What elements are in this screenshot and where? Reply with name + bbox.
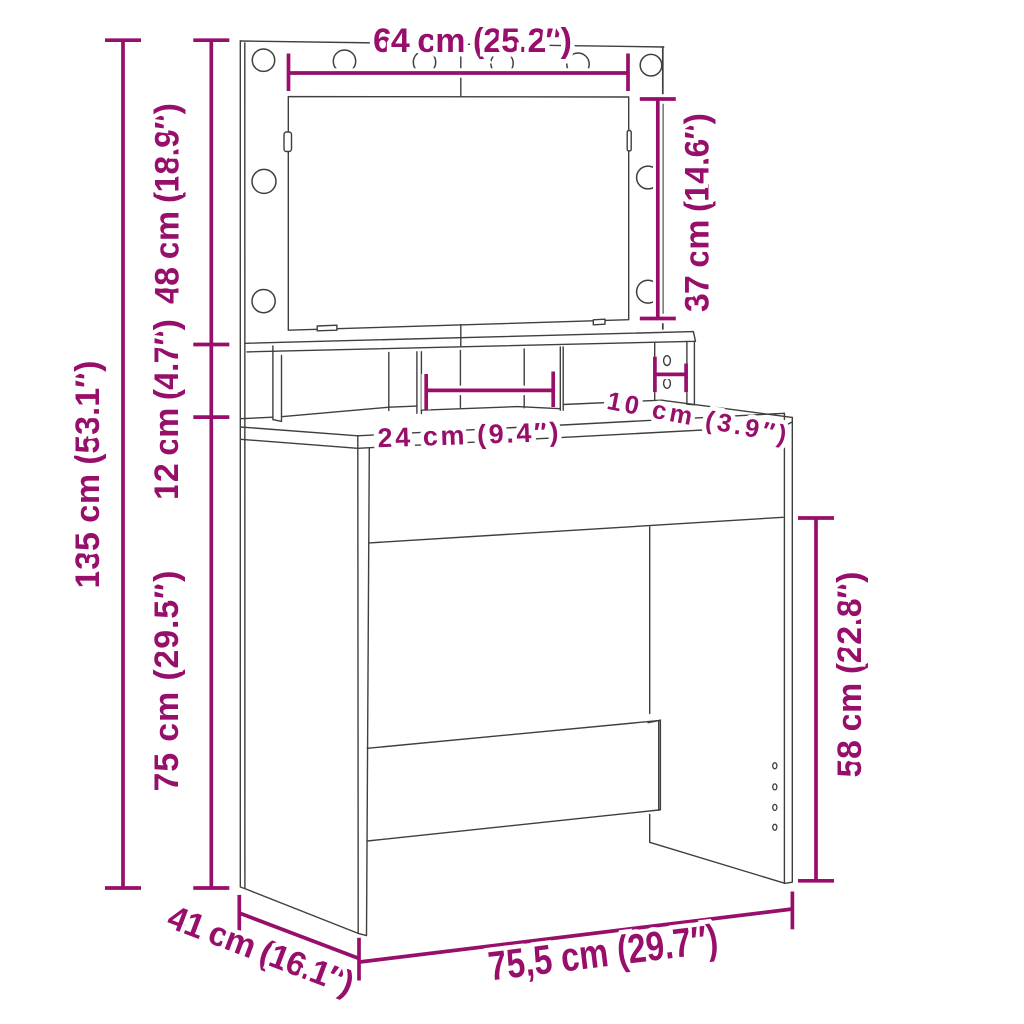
svg-text:48 cm (18.9″): 48 cm (18.9″) xyxy=(149,103,187,304)
svg-text:64 cm (25.2″): 64 cm (25.2″) xyxy=(373,22,572,60)
svg-text:75 cm (29.5″): 75 cm (29.5″) xyxy=(148,571,186,792)
svg-text:37 cm (14.6″): 37 cm (14.6″) xyxy=(678,113,716,312)
svg-text:135 cm (53.1″): 135 cm (53.1″) xyxy=(69,361,107,589)
svg-text:12 cm (4.7″): 12 cm (4.7″) xyxy=(148,319,186,500)
svg-text:58 cm (22.8″): 58 cm (22.8″) xyxy=(831,572,869,778)
